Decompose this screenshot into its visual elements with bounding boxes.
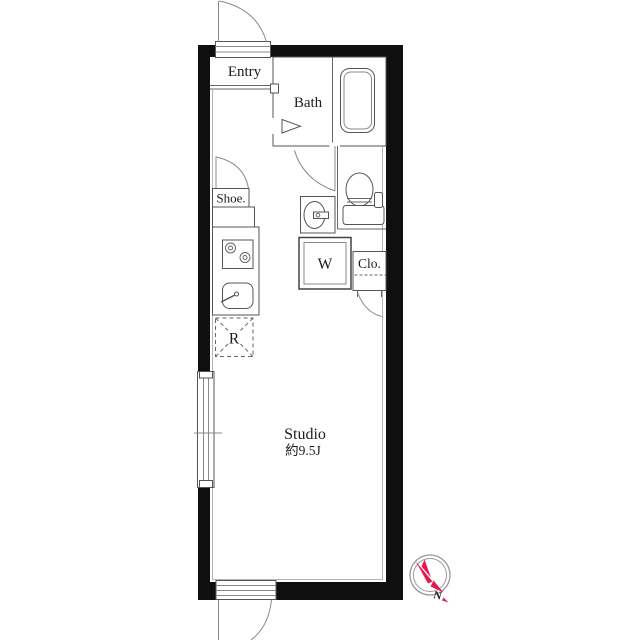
refrigerator-corner-4 (241, 344, 254, 357)
room-label-shoe: Shoe. (216, 191, 245, 206)
toilet-area (338, 146, 387, 229)
washroom-door (295, 146, 336, 191)
floorplan-page: Entry Bath (0, 0, 640, 640)
wall-right (386, 45, 403, 600)
wall-bottom-right-segment (275, 582, 403, 600)
bath-door-opening (271, 118, 275, 134)
closet-area: Clo. (353, 252, 386, 317)
compass: N (410, 555, 450, 603)
room-label-closet: Clo. (358, 256, 381, 271)
wall-left-upper-segment (198, 45, 210, 372)
studio-area-size: 約9.5J (285, 443, 321, 458)
floorplan-canvas: Entry Bath (0, 0, 640, 640)
wall-top-right-segment (270, 45, 403, 57)
bottom-door-swing-arc (251, 600, 272, 640)
refrigerator-corner-2 (241, 318, 254, 331)
room-label-entry: Entry (228, 64, 262, 80)
bath-room: Bath (271, 57, 387, 150)
window-end-cap-bottom (200, 481, 213, 488)
entry-area: Entry (210, 57, 273, 89)
entry-door (216, 1, 271, 58)
kitchen-faucet-head (235, 292, 239, 296)
kitchen-area (213, 227, 260, 315)
refrigerator-corner-3 (216, 344, 229, 357)
window-frame (198, 372, 215, 488)
shoe-cabinet-area: Shoe. (213, 157, 255, 228)
washing-machine-area: W (299, 238, 351, 290)
room-label-bath: Bath (294, 95, 323, 111)
window-end-cap-top (200, 372, 213, 379)
washroom-door-swing-arc (295, 151, 336, 192)
entry-door-swing-arc (220, 1, 267, 42)
bottom-door (216, 581, 276, 640)
compass-north-label: N (432, 589, 443, 603)
room-label-washer: W (318, 256, 333, 273)
toilet-control (375, 193, 383, 208)
compass-needle-tail-tip (442, 598, 449, 603)
room-label-refrigerator: R (229, 331, 240, 348)
wall-bottom-left-segment (198, 582, 217, 600)
sliding-window (194, 372, 222, 488)
studio-area: Studio 約9.5J (284, 426, 326, 458)
room-label-studio: Studio (284, 426, 326, 443)
refrigerator-corner-1 (216, 318, 229, 331)
shoe-door-swing-arc (216, 157, 249, 189)
wall-niche (271, 84, 279, 93)
entry-door-frame (216, 42, 271, 58)
washbasin (301, 197, 336, 234)
shoe-cabinet-lower (213, 207, 255, 227)
toilet-bowl (346, 173, 373, 206)
closet-door-swing-arc (358, 294, 382, 317)
bathtub (341, 69, 375, 133)
toilet-tank (343, 206, 384, 225)
